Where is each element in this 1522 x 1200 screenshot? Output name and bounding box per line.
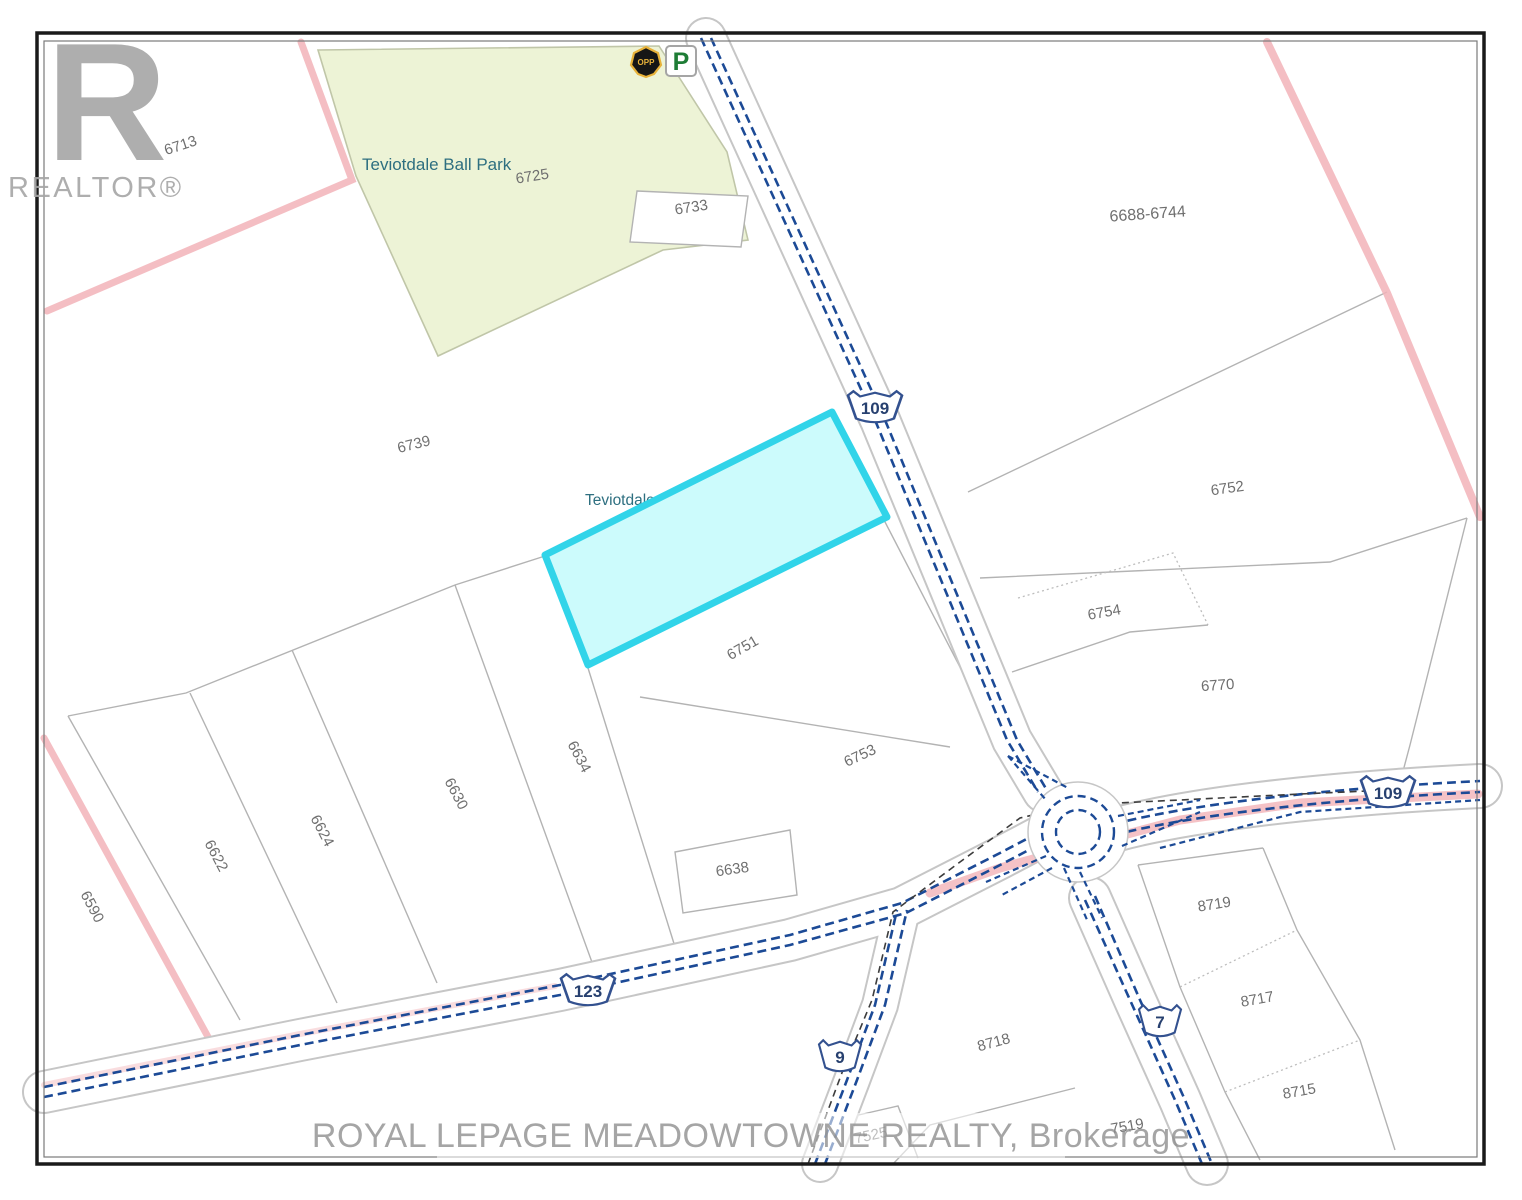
parcel-divider	[1263, 848, 1395, 1150]
highway-shield-123: 123	[561, 974, 615, 1005]
parcel-label: 6751	[724, 632, 761, 663]
parking-icon: P	[666, 46, 696, 76]
parcel-label: 8715	[1281, 1080, 1317, 1103]
parcel-divider	[640, 697, 950, 747]
parcel-divider	[1138, 848, 1263, 865]
parcel-label: 6688-6744	[1109, 203, 1187, 225]
opp-label: OPP	[638, 58, 656, 67]
highway-shield-109: 109	[848, 391, 902, 422]
shield-route-number: 109	[861, 399, 889, 418]
parcel-label: 6739	[396, 432, 432, 457]
pink-boundary	[44, 738, 213, 1046]
parcel-label: 6624	[307, 812, 338, 849]
parcel-label: 8718	[976, 1030, 1013, 1055]
highway-shield-109: 109	[1361, 776, 1415, 807]
parcel-divider	[1180, 930, 1297, 987]
parcel-label: 6630	[441, 775, 472, 812]
roundabout-island	[1056, 810, 1100, 854]
highway-shield-7: 7	[1139, 1005, 1181, 1036]
parcel-divider	[1398, 518, 1467, 790]
shield-route-number: 109	[1374, 784, 1402, 803]
subject-property-highlight	[545, 412, 887, 665]
parcel-divider	[968, 292, 1387, 492]
place-label: Teviotdale Ball Park	[362, 155, 512, 174]
parcel-label: 8719	[1196, 894, 1232, 916]
pink-boundary	[1267, 42, 1480, 517]
parcel-label: 6752	[1210, 478, 1245, 499]
highway-shield-9: 9	[819, 1040, 861, 1071]
shield-route-number: 7	[1155, 1013, 1164, 1032]
opp-badge-icon: OPP	[631, 47, 661, 77]
parcel-divider	[980, 518, 1467, 578]
parcel-label: 6713	[162, 132, 199, 158]
parking-label: P	[673, 48, 690, 76]
parcel-label: 6590	[77, 888, 108, 925]
parcel-label: 6753	[841, 741, 878, 771]
highlight-parcel	[545, 412, 887, 665]
parcel-label: 6622	[201, 837, 232, 874]
parcel-divider	[455, 585, 593, 965]
parcel-label: 6754	[1086, 601, 1122, 624]
map-viewport: Teviotdale Teviotdale Ball Park671367256…	[0, 0, 1522, 1200]
brokerage-watermark: ROYAL LEPAGE MEADOWTOWNE REALTY, Brokera…	[312, 1117, 1190, 1155]
map-canvas: Teviotdale Teviotdale Ball Park671367256…	[0, 0, 1522, 1200]
parcel-divider	[588, 668, 676, 950]
realtor-logo-icon: R	[46, 8, 167, 196]
realtor-wordmark: REALTOR®	[8, 172, 184, 204]
parcel-divider	[1012, 625, 1208, 672]
parcel-label: 6770	[1200, 676, 1234, 695]
parcel-label: 8717	[1239, 988, 1275, 1011]
shield-route-number: 9	[835, 1048, 844, 1067]
shield-route-number: 123	[574, 982, 602, 1001]
parcel-label: 6634	[564, 738, 595, 775]
